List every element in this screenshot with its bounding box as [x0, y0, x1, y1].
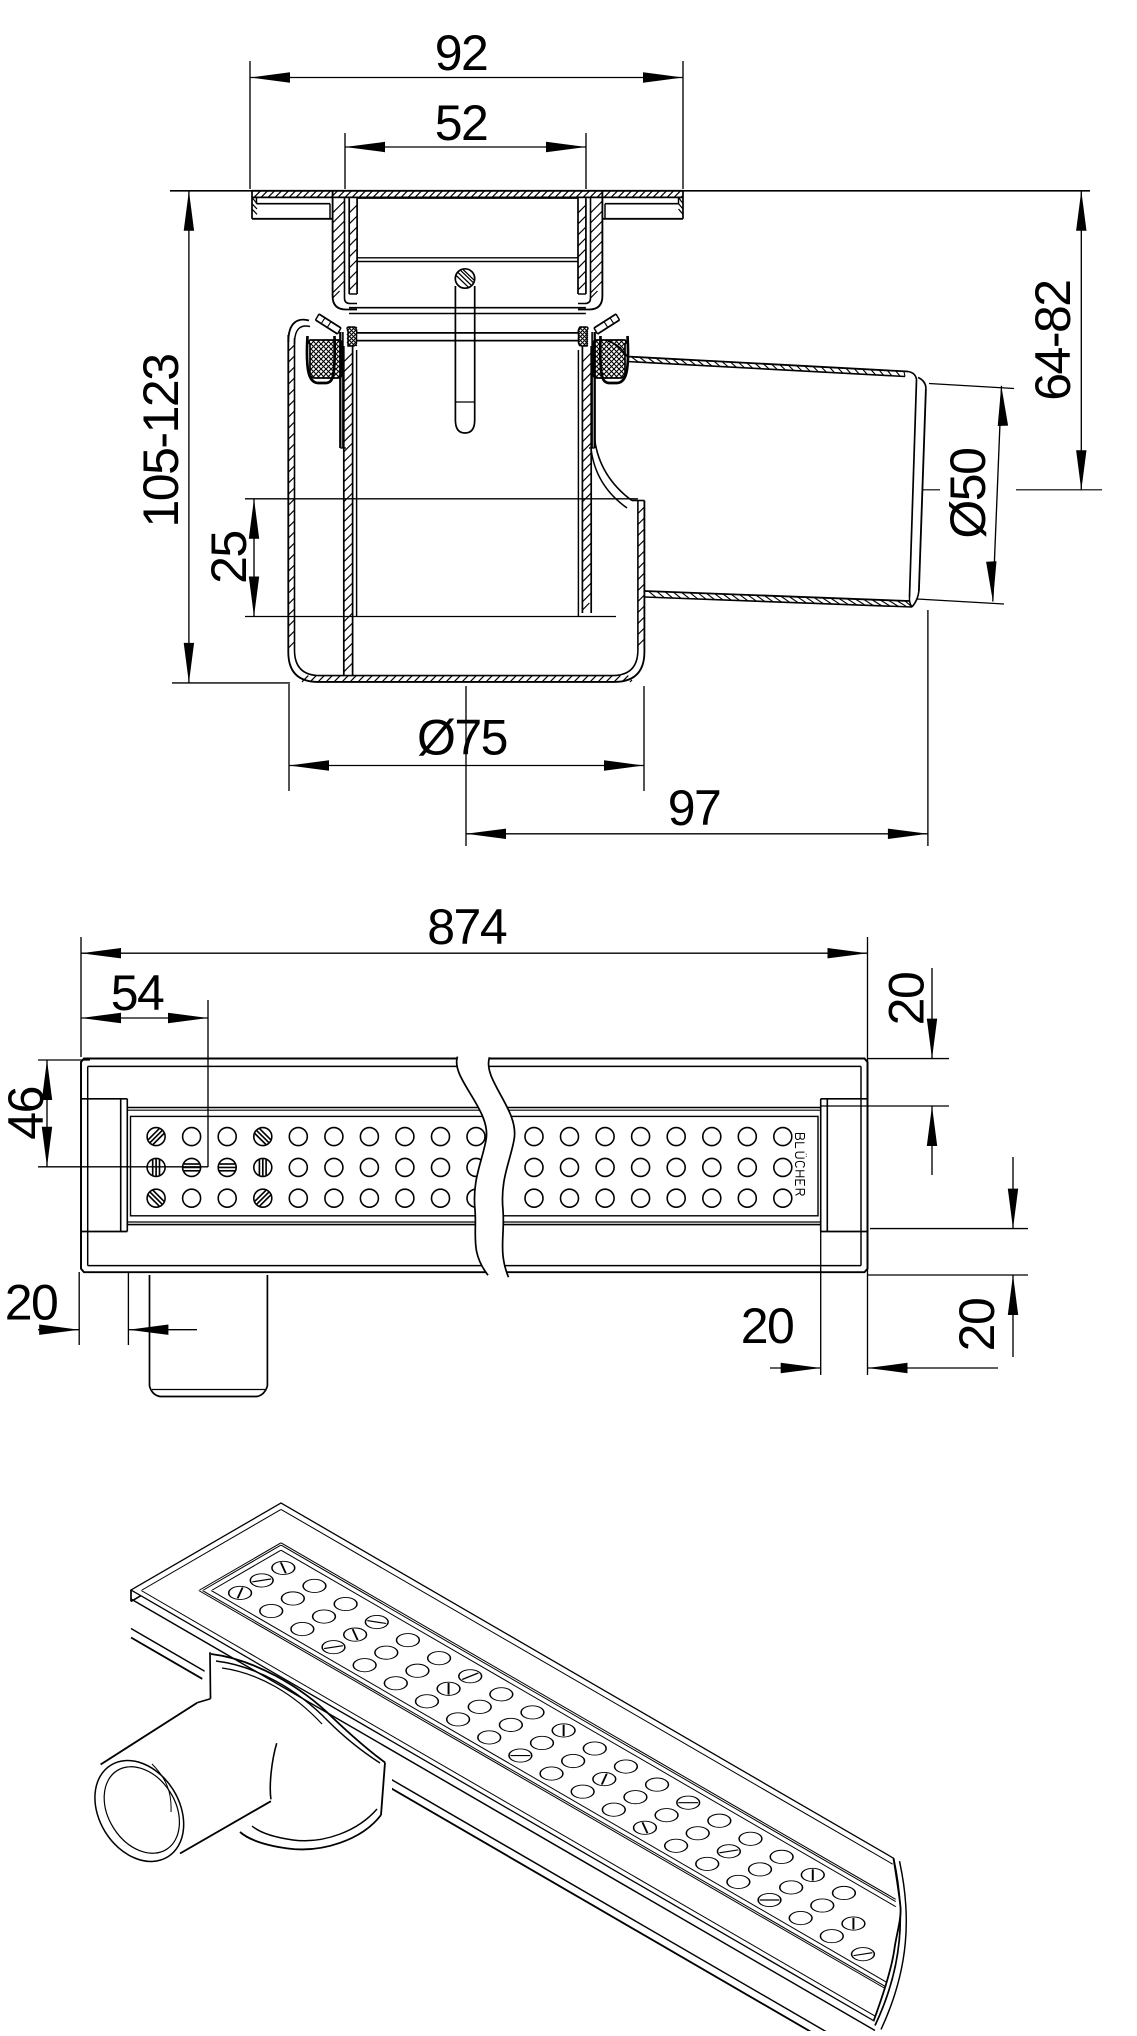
svg-text:20: 20 [5, 1275, 58, 1331]
svg-text:25: 25 [201, 531, 257, 584]
svg-text:52: 52 [435, 95, 488, 151]
svg-text:20: 20 [879, 973, 935, 1026]
svg-text:874: 874 [427, 899, 507, 955]
svg-text:20: 20 [949, 1299, 1005, 1352]
svg-text:54: 54 [111, 965, 164, 1021]
svg-text:20: 20 [741, 1298, 794, 1354]
svg-text:97: 97 [668, 780, 721, 836]
svg-text:46: 46 [0, 1087, 54, 1140]
svg-text:Ø75: Ø75 [417, 710, 507, 766]
svg-text:92: 92 [435, 25, 488, 81]
svg-text:64-82: 64-82 [1025, 280, 1081, 400]
svg-text:Ø50: Ø50 [940, 449, 996, 539]
svg-text:105-123: 105-123 [133, 355, 189, 528]
